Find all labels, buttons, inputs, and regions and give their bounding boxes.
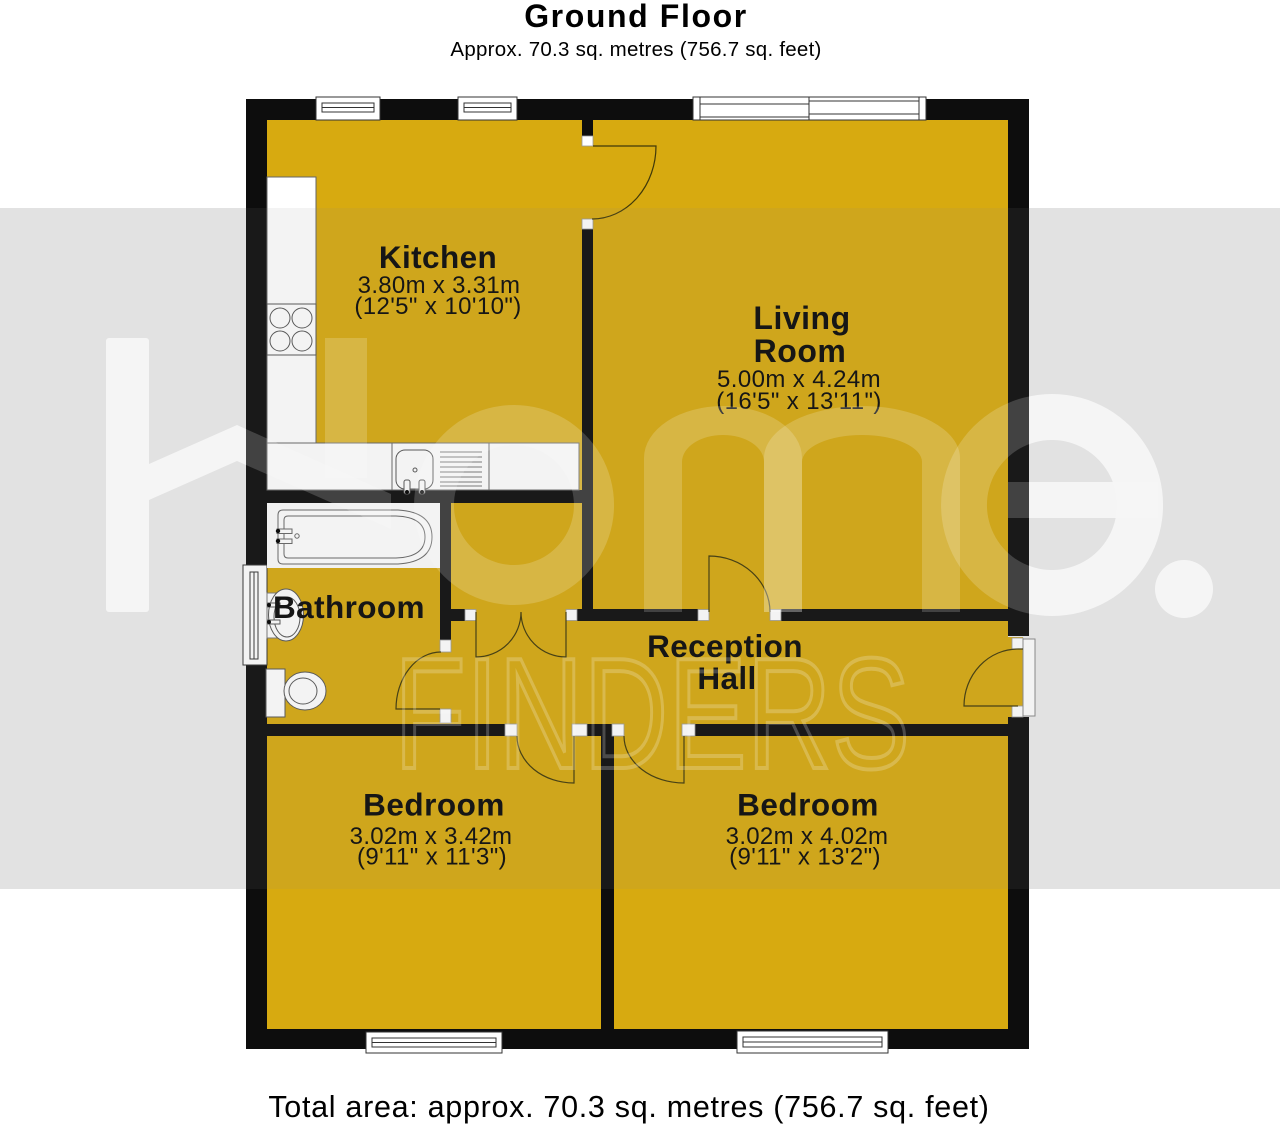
svg-text:FINDERS: FINDERS: [394, 626, 910, 802]
svg-text:Ground Floor: Ground Floor: [524, 0, 748, 34]
svg-text:Total area: approx. 70.3 sq. m: Total area: approx. 70.3 sq. metres (756…: [268, 1090, 989, 1124]
svg-text:Approx. 70.3 sq. metres (756.7: Approx. 70.3 sq. metres (756.7 sq. feet): [450, 38, 821, 61]
